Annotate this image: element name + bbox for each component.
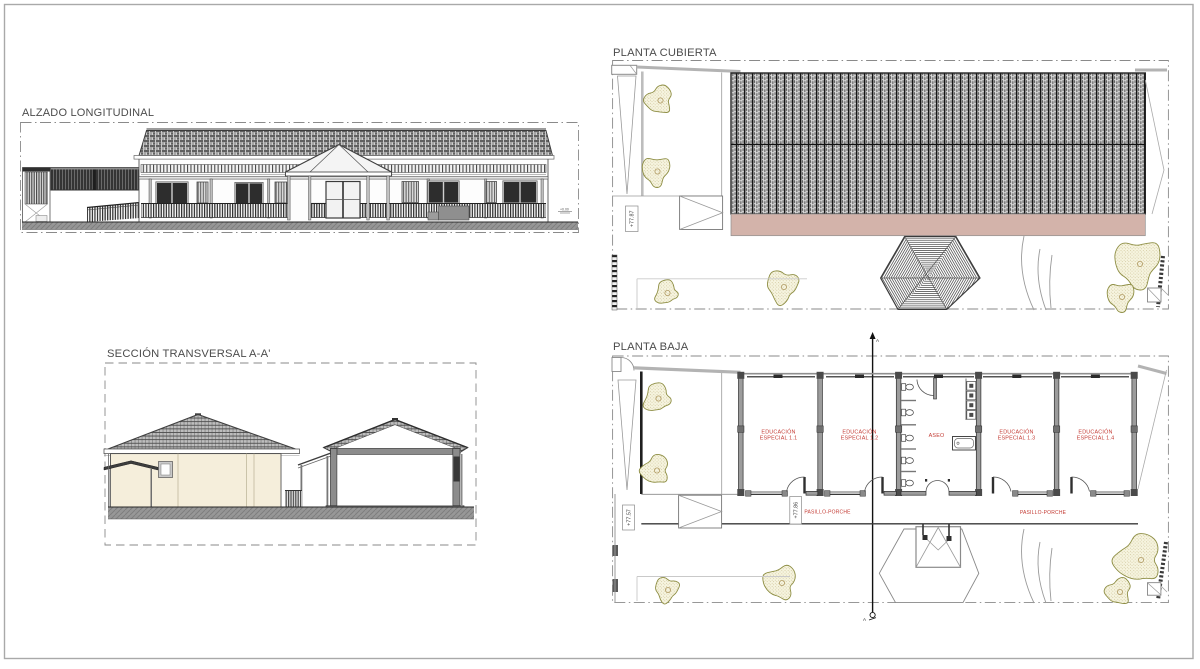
svg-text:ASEO: ASEO	[929, 433, 945, 439]
svg-text:EDUCACIÓNESPECIAL 1.3: EDUCACIÓNESPECIAL 1.3	[998, 429, 1036, 442]
svg-text:A: A	[863, 617, 866, 622]
svg-text:A: A	[876, 338, 879, 343]
svg-text:ALZADO LONGITUDINAL: ALZADO LONGITUDINAL	[22, 107, 154, 119]
svg-text:EDUCACIÓNESPECIAL 1.4: EDUCACIÓNESPECIAL 1.4	[1077, 429, 1115, 442]
svg-text:+77.86: +77.86	[793, 502, 799, 519]
svg-text:PASILLO-PORCHE: PASILLO-PORCHE	[804, 510, 851, 516]
svg-text:+0.00: +0.00	[560, 208, 569, 212]
svg-text:PLANTA CUBIERTA: PLANTA CUBIERTA	[613, 47, 717, 59]
svg-text:+77.87: +77.87	[630, 210, 636, 227]
svg-text:EDUCACIÓNESPECIAL 1.2: EDUCACIÓNESPECIAL 1.2	[841, 429, 879, 442]
svg-text:SECCIÓN TRANSVERSAL A-A': SECCIÓN TRANSVERSAL A-A'	[107, 347, 271, 360]
svg-text:PASILLO-PORCHE: PASILLO-PORCHE	[1020, 510, 1067, 516]
svg-text:EDUCACIÓNESPECIAL 1.1: EDUCACIÓNESPECIAL 1.1	[760, 429, 798, 442]
svg-text:PLANTA BAJA: PLANTA BAJA	[613, 341, 689, 353]
svg-text:+77.57: +77.57	[626, 509, 632, 526]
